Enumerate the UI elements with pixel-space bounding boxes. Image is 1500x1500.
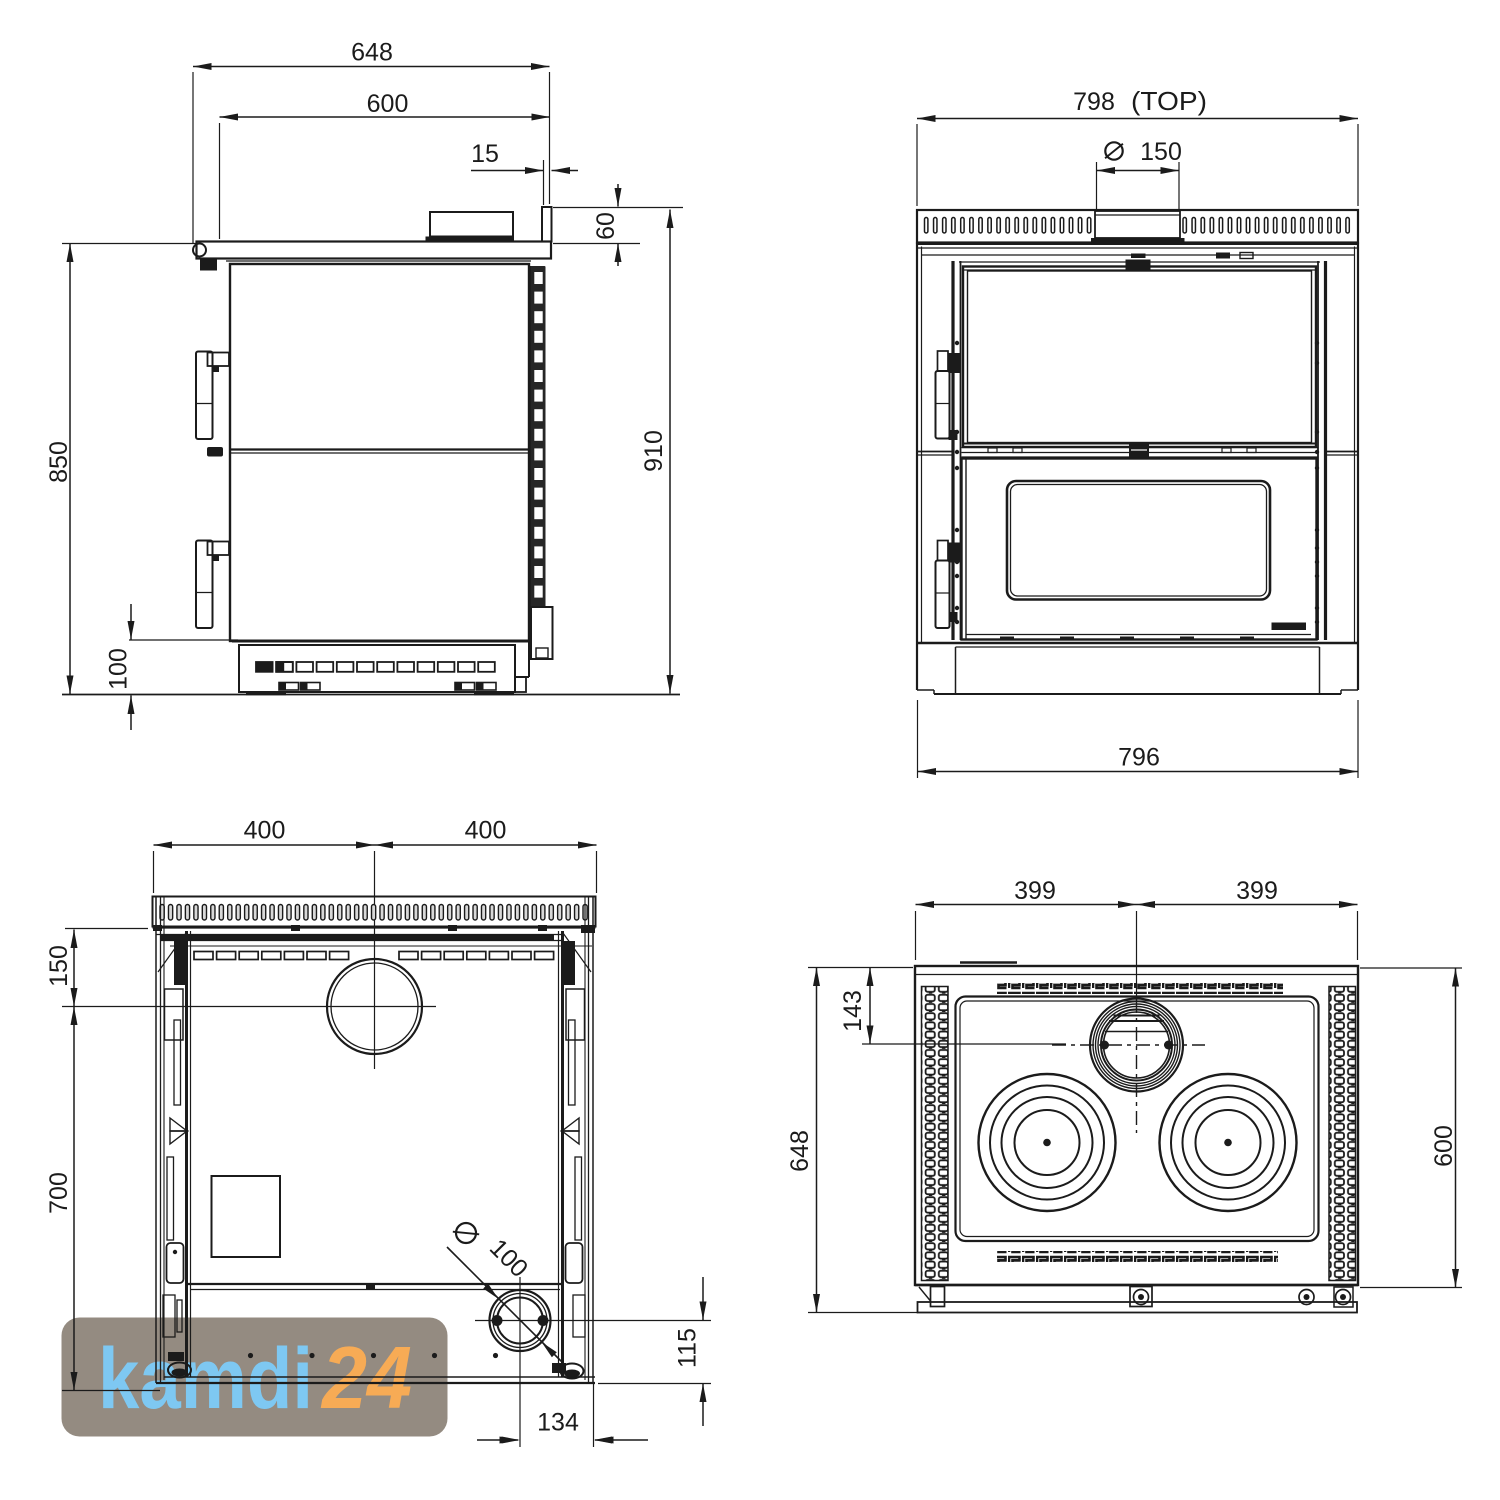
svg-text:60: 60 <box>592 212 620 240</box>
svg-text:115: 115 <box>674 1328 702 1368</box>
svg-text:150: 150 <box>45 945 73 987</box>
svg-text:100: 100 <box>105 648 133 690</box>
svg-text:400: 400 <box>465 817 507 845</box>
svg-text:kamdi: kamdi <box>98 1331 313 1427</box>
svg-text:798: 798 <box>1073 88 1115 116</box>
svg-text:910: 910 <box>640 430 668 472</box>
svg-text:796: 796 <box>1118 744 1160 772</box>
svg-text:143: 143 <box>839 990 867 1032</box>
svg-text:15: 15 <box>471 140 499 168</box>
svg-text:600: 600 <box>1430 1125 1458 1167</box>
svg-text:850: 850 <box>45 441 73 483</box>
svg-text:648: 648 <box>351 39 393 67</box>
svg-text:(TOP): (TOP) <box>1131 86 1207 116</box>
svg-text:150: 150 <box>1140 138 1182 166</box>
svg-text:648: 648 <box>786 1130 814 1172</box>
svg-text:399: 399 <box>1236 877 1278 905</box>
svg-text:700: 700 <box>45 1172 73 1214</box>
svg-text:400: 400 <box>244 817 286 845</box>
svg-text:134: 134 <box>537 1409 579 1437</box>
svg-text:600: 600 <box>367 90 409 118</box>
svg-text:399: 399 <box>1014 877 1056 905</box>
